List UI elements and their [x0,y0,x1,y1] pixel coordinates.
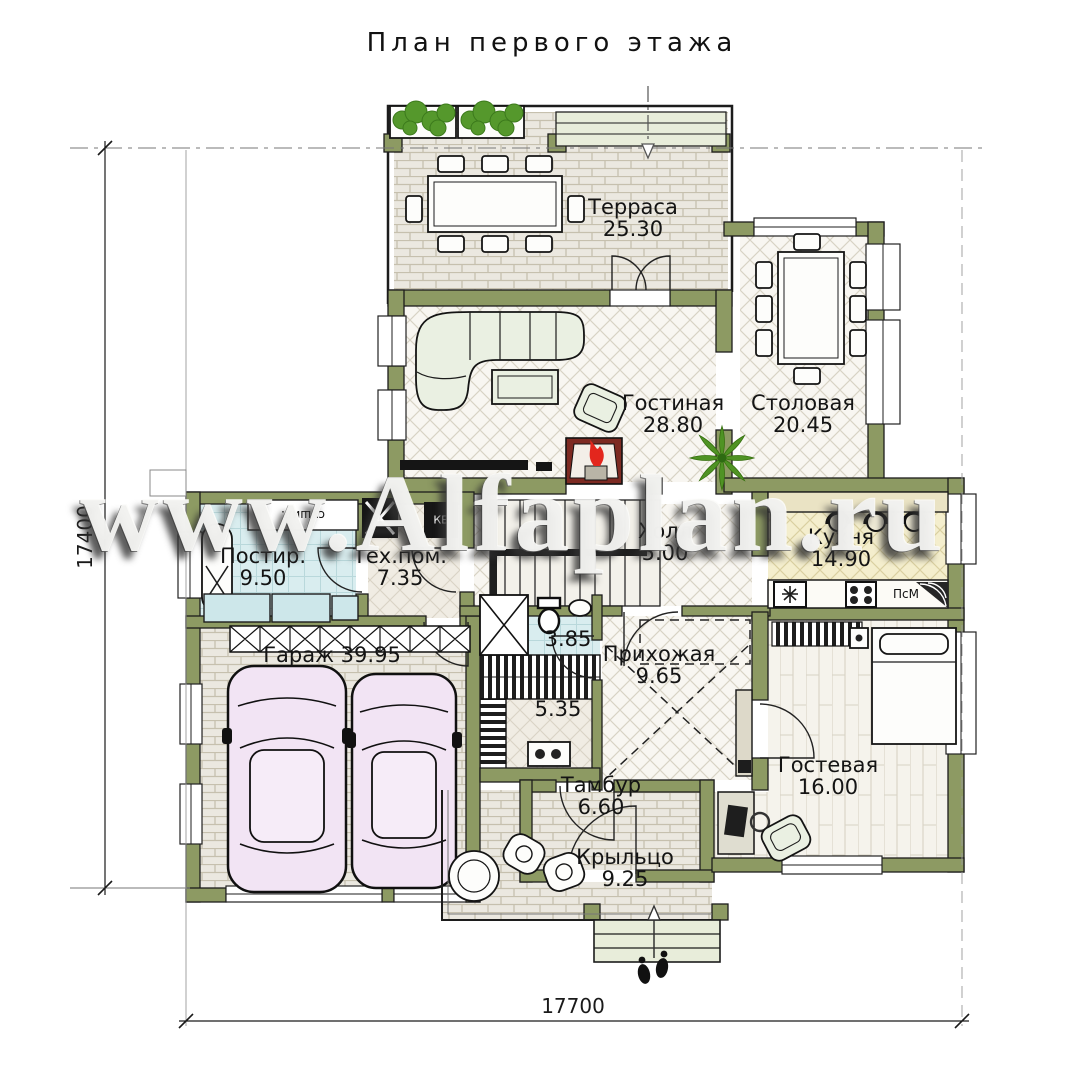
entrance-steps [594,920,720,962]
palm-plant-icon [690,426,754,490]
fireplace-icon [566,438,622,484]
kitchen-bar-counter [768,492,948,512]
stove-icon [528,742,570,766]
bar-stool-icons [827,513,925,531]
toilet-icon [538,598,560,633]
terrace-steps [556,112,726,146]
car-2-icon [346,674,462,888]
coffee-table-icon [492,370,558,404]
terrace-door [610,290,670,306]
dryer-shelf [248,500,358,530]
porch-table-icon [449,851,499,901]
staircase [490,500,660,606]
guest-radiator [772,622,862,646]
dining-table-icon [778,252,844,364]
boiler-icon [424,502,458,538]
car-1-icon [222,666,352,892]
hob-icon [846,582,876,607]
tv-console-icon [400,460,528,470]
sink-icon [569,600,591,616]
floor-plan-drawing [0,0,1080,1080]
